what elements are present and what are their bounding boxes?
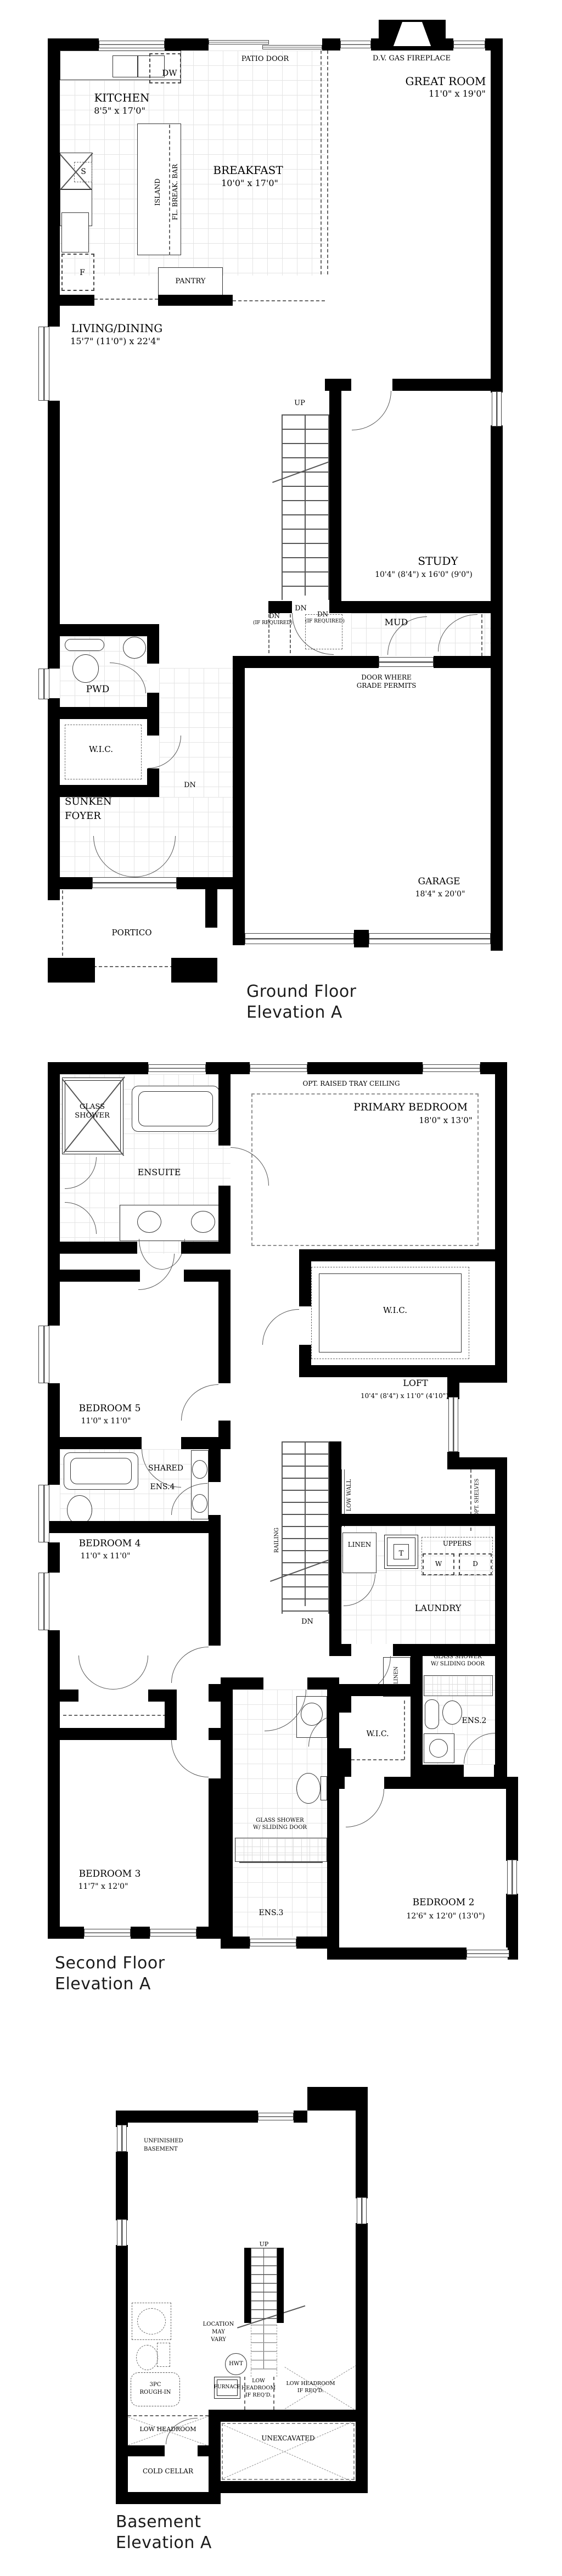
wall <box>221 1677 263 1690</box>
unfinished-basement-label: UNFINISHED <box>144 2139 183 2144</box>
wic-bed2-label: W.I.C. <box>366 1730 389 1738</box>
wall <box>480 1062 507 1074</box>
wall <box>411 1765 464 1777</box>
wall <box>147 636 159 664</box>
basement-stairs-dashed <box>251 2325 277 2377</box>
door-swing <box>171 1740 209 1777</box>
wall <box>339 1684 411 1696</box>
wall <box>48 38 60 327</box>
shared-ens4-label: ENS.4 <box>150 1483 175 1491</box>
window <box>492 391 502 426</box>
window <box>117 2219 127 2246</box>
linen-closet <box>342 1533 376 1573</box>
wall <box>325 379 351 391</box>
washer-label: W <box>435 1561 442 1567</box>
second-floor-subtitle: Elevation A <box>55 1976 151 1993</box>
low-wall-label: LOW WALL <box>347 1479 352 1512</box>
wall <box>233 656 379 668</box>
wall <box>48 1630 60 1927</box>
wall <box>411 1656 423 1777</box>
opt-shelves-label: OPT. SHELVES <box>475 1479 480 1517</box>
garage-door-pier <box>354 930 369 947</box>
fridge-outline <box>61 254 94 291</box>
hall-floor <box>159 668 233 797</box>
tray-ceiling-label: OPT. RAISED TRAY CEILING <box>302 1080 400 1087</box>
front-door <box>92 877 177 888</box>
wall <box>48 1927 84 1939</box>
wall <box>221 1937 250 1949</box>
garage-dims: 18'4" x 20'0" <box>415 890 465 898</box>
door-grade-label: GRADE PERMITS <box>357 682 417 689</box>
unexcavated-label: UNEXCAVATED <box>261 2435 314 2442</box>
fridge <box>61 212 89 252</box>
sunken-foyer-label: FOYER <box>65 811 101 821</box>
bedroom4-dims: 11'0" x 11'0" <box>81 1552 131 1560</box>
portico-label: PORTICO <box>111 929 151 937</box>
portico-pillar <box>48 958 95 983</box>
low-headroom-label: IF REQ'D. <box>245 2393 272 2398</box>
wall <box>116 2245 128 2492</box>
second-floor-title: Second Floor <box>55 1955 165 1972</box>
wall <box>116 2111 258 2123</box>
fridge-label: F <box>80 269 85 277</box>
bathtub <box>138 1091 213 1126</box>
wall <box>339 1748 351 1777</box>
room-divider <box>321 50 322 274</box>
closet-line <box>351 1759 404 1760</box>
tub-label: T <box>399 1550 404 1557</box>
bay-window <box>38 327 49 401</box>
window <box>453 41 485 48</box>
wall <box>165 38 209 50</box>
glass-shower-sliding-label: GLASS SHOWER <box>256 1818 304 1823</box>
low-headroom-label: LOW <box>252 2378 265 2384</box>
wall <box>506 1789 518 1861</box>
stair-rail <box>305 414 306 596</box>
bay-window <box>38 669 49 699</box>
closet-line <box>404 1701 405 1760</box>
great-room-label: GREAT ROOM <box>405 76 486 87</box>
ens2-shower <box>424 1675 493 1696</box>
door-grade-label: DOOR WHERE <box>361 674 412 681</box>
wall <box>48 295 94 306</box>
kitchen-breakfast-floor <box>60 50 325 276</box>
toilet <box>296 1773 321 1804</box>
wall <box>48 1542 60 1573</box>
opening <box>233 300 325 301</box>
wall <box>233 656 245 945</box>
toilet <box>442 1701 462 1725</box>
sink <box>113 55 138 77</box>
kitchen-dims: 8'5" x 17'0" <box>94 106 145 115</box>
threepc-roughin-label: 3PC <box>150 2382 161 2388</box>
toilet <box>67 1495 92 1525</box>
railing-label: RAILING <box>274 1528 280 1553</box>
sink-label: S <box>81 168 86 176</box>
loft-label: LOFT <box>403 1379 428 1388</box>
wall <box>341 1514 495 1526</box>
wall <box>147 719 159 736</box>
basement-stairs <box>251 2248 277 2323</box>
if-required-label: (IF REQUIRED) <box>305 619 345 624</box>
bedroom4-label: BEDROOM 4 <box>79 1539 141 1548</box>
portico-edge <box>93 966 173 967</box>
wall <box>181 1437 231 1449</box>
sink <box>191 1211 215 1233</box>
garage-door <box>369 933 491 944</box>
threepc-roughin-label: ROUGH-IN <box>140 2390 171 2395</box>
glass-shower-sliding-label: W/ SLIDING DOOR <box>431 1662 485 1667</box>
wall <box>177 877 233 889</box>
ens3-label: ENS.3 <box>259 1909 284 1917</box>
wall <box>299 1365 495 1377</box>
window <box>357 2197 367 2224</box>
kitchen-label: KITCHEN <box>94 92 149 103</box>
wall <box>335 601 341 613</box>
portico-pillar <box>171 958 217 983</box>
roughin-fixture <box>137 2308 166 2334</box>
wall <box>356 2223 368 2493</box>
unfinished-basement-label: BASEMENT <box>144 2147 178 2152</box>
low-headroom-label: IF REQ'D. <box>297 2388 324 2394</box>
wall <box>209 1684 221 1702</box>
opening <box>94 299 158 300</box>
wall <box>48 1728 177 1740</box>
pantry-label: PANTRY <box>176 278 206 285</box>
window <box>423 1064 480 1072</box>
wall <box>48 624 159 636</box>
door-swing <box>262 1309 299 1345</box>
wall <box>494 1765 507 1777</box>
furnace-label: FURNACE <box>214 2385 240 2390</box>
wall <box>116 2492 221 2504</box>
wall <box>307 1677 339 1690</box>
wall <box>446 38 453 50</box>
floor-plan-sheet: PATIO DOOR DW D.V. GAS FIREPLACE GREAT R… <box>0 0 562 2576</box>
low-headroom-label: HEADROOM <box>241 2386 276 2391</box>
window <box>258 2113 294 2120</box>
wall <box>206 1062 250 1074</box>
toilet-tank <box>321 1776 327 1800</box>
bedroom5-label: BEDROOM 5 <box>79 1404 141 1413</box>
hwt-label: HWT <box>229 2361 243 2367</box>
window <box>250 1064 307 1072</box>
living-dining-dims: 15'7" (11'0") x 22'4" <box>70 337 160 346</box>
study-dims: 10'4" (8'4") x 16'0" (9'0") <box>375 571 473 579</box>
low-headroom-x <box>285 2365 357 2409</box>
wall <box>48 698 60 900</box>
wall <box>329 1644 351 1656</box>
garage-label: GARAGE <box>418 877 460 886</box>
door-swing <box>181 1384 218 1421</box>
sink <box>137 1211 161 1233</box>
ens2-label: ENS.2 <box>462 1717 487 1725</box>
dn-foyer-label: DN <box>184 782 196 789</box>
wall <box>148 1690 177 1702</box>
wall <box>209 2422 221 2481</box>
breakfast-label: BREAKFAST <box>213 165 283 176</box>
wall <box>205 889 217 928</box>
wall <box>48 1270 140 1282</box>
wall <box>329 379 341 613</box>
wall <box>495 1074 507 1371</box>
door-swing <box>113 1655 148 1690</box>
wall <box>209 1521 221 1646</box>
window <box>148 1064 206 1072</box>
wic-primary-label: W.I.C. <box>383 1306 407 1315</box>
glass-shower-label: GLASS <box>80 1103 105 1110</box>
closet-line <box>481 614 482 656</box>
wall <box>209 1728 221 1740</box>
wall <box>198 2445 209 2456</box>
stair-wall <box>277 2248 284 2323</box>
wall <box>434 656 491 668</box>
wall <box>218 1270 231 1383</box>
patio-door <box>262 45 322 49</box>
window <box>448 1397 458 1452</box>
wall <box>181 1242 231 1254</box>
up-label: UP <box>294 400 305 407</box>
bay-window <box>38 1573 49 1630</box>
wall <box>165 1702 177 1728</box>
wall <box>218 1421 231 1437</box>
window <box>507 1860 517 1895</box>
wall <box>48 877 92 889</box>
bedroom5-dims: 11'0" x 11'0" <box>81 1417 131 1425</box>
wall <box>341 601 491 613</box>
door-swing <box>78 1655 113 1690</box>
vanity <box>425 1699 439 1729</box>
stair-wall <box>244 2248 251 2323</box>
dn-label: DN <box>301 1618 313 1625</box>
wall <box>221 1677 233 1949</box>
wall <box>48 1062 148 1074</box>
sink <box>123 637 146 659</box>
wall <box>491 425 503 951</box>
wall <box>268 601 292 613</box>
bedroom2-dims: 12'6" x 12'0" (13'0") <box>406 1912 485 1920</box>
stair-rail <box>305 1441 306 1606</box>
breakfast-dims: 10'0" x 17'0" <box>221 179 278 188</box>
if-required-label: (IF REQUIRED) <box>253 621 293 626</box>
glass-shower-sliding-label: W/ SLIDING DOOR <box>253 1825 307 1831</box>
ens3-shower <box>235 1838 327 1862</box>
wall <box>60 1242 137 1254</box>
bedroom3-label: BEDROOM 3 <box>79 1870 141 1879</box>
linen-label: LINEN <box>348 1541 371 1548</box>
wall <box>158 295 233 306</box>
roughin-fixture <box>157 2343 170 2367</box>
dn-if-required-label: DN <box>317 611 328 618</box>
wall <box>196 1927 221 1939</box>
wall <box>209 1778 221 1937</box>
living-dining-label: LIVING/DINING <box>71 323 163 334</box>
roughin-toilet <box>136 2345 158 2370</box>
wall <box>339 1696 351 1713</box>
wall <box>322 38 340 50</box>
wall <box>299 1261 311 1306</box>
wall <box>131 1927 150 1939</box>
door-swing <box>352 391 391 430</box>
location-may-vary-label: LOCATION <box>203 2322 234 2327</box>
wall <box>116 2152 128 2220</box>
primary-bedroom-label: PRIMARY BEDROOM <box>353 1102 468 1113</box>
basement-title: Basement <box>116 2514 201 2530</box>
fireplace-label: D.V. GAS FIREPLACE <box>373 55 451 62</box>
wall <box>48 1521 221 1533</box>
wall <box>48 1062 60 1326</box>
wall <box>392 379 491 391</box>
toilet <box>72 654 99 683</box>
sink <box>192 1460 207 1479</box>
basement-subtitle: Elevation A <box>116 2535 212 2551</box>
laundry-label: LAUNDRY <box>415 1604 462 1613</box>
garage-door <box>245 933 354 944</box>
window <box>340 41 371 48</box>
wall <box>299 1249 495 1261</box>
pwd-label: PWD <box>86 685 110 694</box>
patio-door-label: PATIO DOOR <box>241 55 289 63</box>
portico-edge <box>62 890 63 967</box>
wall <box>209 1437 221 1482</box>
sunken-foyer-label: SUNKEN <box>65 797 112 807</box>
window <box>250 1939 296 1946</box>
ground-floor-subtitle: Elevation A <box>246 1004 342 1021</box>
wall <box>447 1457 507 1469</box>
wall <box>48 1437 142 1449</box>
shared-ens4-label: SHARED <box>148 1464 183 1472</box>
wall <box>128 2445 165 2456</box>
wall <box>327 1948 467 1960</box>
wall <box>48 785 159 797</box>
linen-label: LINEN <box>395 1666 400 1684</box>
unexcavated-outline <box>222 2423 355 2480</box>
wall <box>218 1074 231 1146</box>
dn-label: DN <box>295 605 307 612</box>
low-headroom-label: LOW HEADROOM <box>286 2381 335 2387</box>
window <box>150 1929 196 1937</box>
wall <box>329 1441 341 1656</box>
breakfast-bar-label: FL. BREAK. BAR <box>172 164 178 220</box>
wall <box>48 1690 78 1702</box>
patio-door <box>209 40 269 44</box>
primary-bedroom-dims: 18'0" x 13'0" <box>419 1116 472 1125</box>
bathtub <box>70 1458 132 1484</box>
loft-dims: 10'4" (8'4") x 11'0" (4'10") <box>361 1393 448 1399</box>
mud-label: MUD <box>385 618 408 627</box>
glass-shower-label: SHOWER <box>75 1112 110 1119</box>
up-label: UP <box>260 2241 269 2247</box>
vanity <box>65 639 104 651</box>
wall <box>296 1937 339 1949</box>
window <box>84 1929 131 1937</box>
sliding-door <box>239 1862 323 1863</box>
wall <box>294 2111 307 2123</box>
wall <box>506 1894 518 1948</box>
wall <box>371 38 379 50</box>
low-headroom-edge <box>128 2415 209 2416</box>
location-may-vary-label: VARY <box>211 2337 226 2343</box>
great-room-dims: 11'0" x 19'0" <box>429 89 486 98</box>
breakfast-bar-overhang <box>169 125 170 255</box>
study-label: STUDY <box>418 555 458 566</box>
bedroom2-label: BEDROOM 2 <box>413 1898 475 1907</box>
sink <box>429 1739 448 1758</box>
wall <box>209 2481 368 2493</box>
low-headroom-label: LOW HEADROOM <box>139 2426 196 2432</box>
cold-cellar-label: COLD CELLAR <box>143 2468 193 2474</box>
uppers-label: UPPERS <box>443 1540 471 1547</box>
wall <box>307 2087 356 2111</box>
wall <box>327 1677 339 1949</box>
closet-rod <box>63 1715 166 1716</box>
door-swing <box>346 1789 384 1827</box>
bay-window <box>38 1326 49 1383</box>
ground-floor-title: Ground Floor <box>246 984 357 1000</box>
glass-shower-sliding-label: GLASS SHOWER <box>434 1654 481 1660</box>
wall <box>495 1469 507 1777</box>
wall <box>384 1777 518 1789</box>
room-divider <box>327 50 328 274</box>
dn-if-required-label: DN <box>269 613 280 619</box>
exterior-door <box>379 657 434 667</box>
island-label: ISLAND <box>154 178 161 206</box>
window <box>99 41 165 48</box>
dishwasher-label: DW <box>162 69 177 77</box>
wall <box>209 2410 368 2422</box>
door-swing <box>171 1647 209 1683</box>
window <box>467 1950 509 1957</box>
bedroom3-dims: 11'7" x 12'0" <box>78 1883 128 1890</box>
wall <box>491 38 503 392</box>
wall <box>48 1383 60 1485</box>
bay-window <box>38 1485 49 1542</box>
dryer-label: D <box>473 1561 478 1567</box>
low-headroom-line <box>273 2377 274 2410</box>
wall <box>48 707 159 719</box>
wic-label: W.I.C. <box>89 745 113 754</box>
ensuite-label: ENSUITE <box>138 1168 181 1177</box>
wall <box>307 1062 423 1074</box>
location-may-vary-label: MAY <box>212 2330 225 2335</box>
window <box>117 2125 127 2152</box>
wall <box>356 2087 368 2198</box>
